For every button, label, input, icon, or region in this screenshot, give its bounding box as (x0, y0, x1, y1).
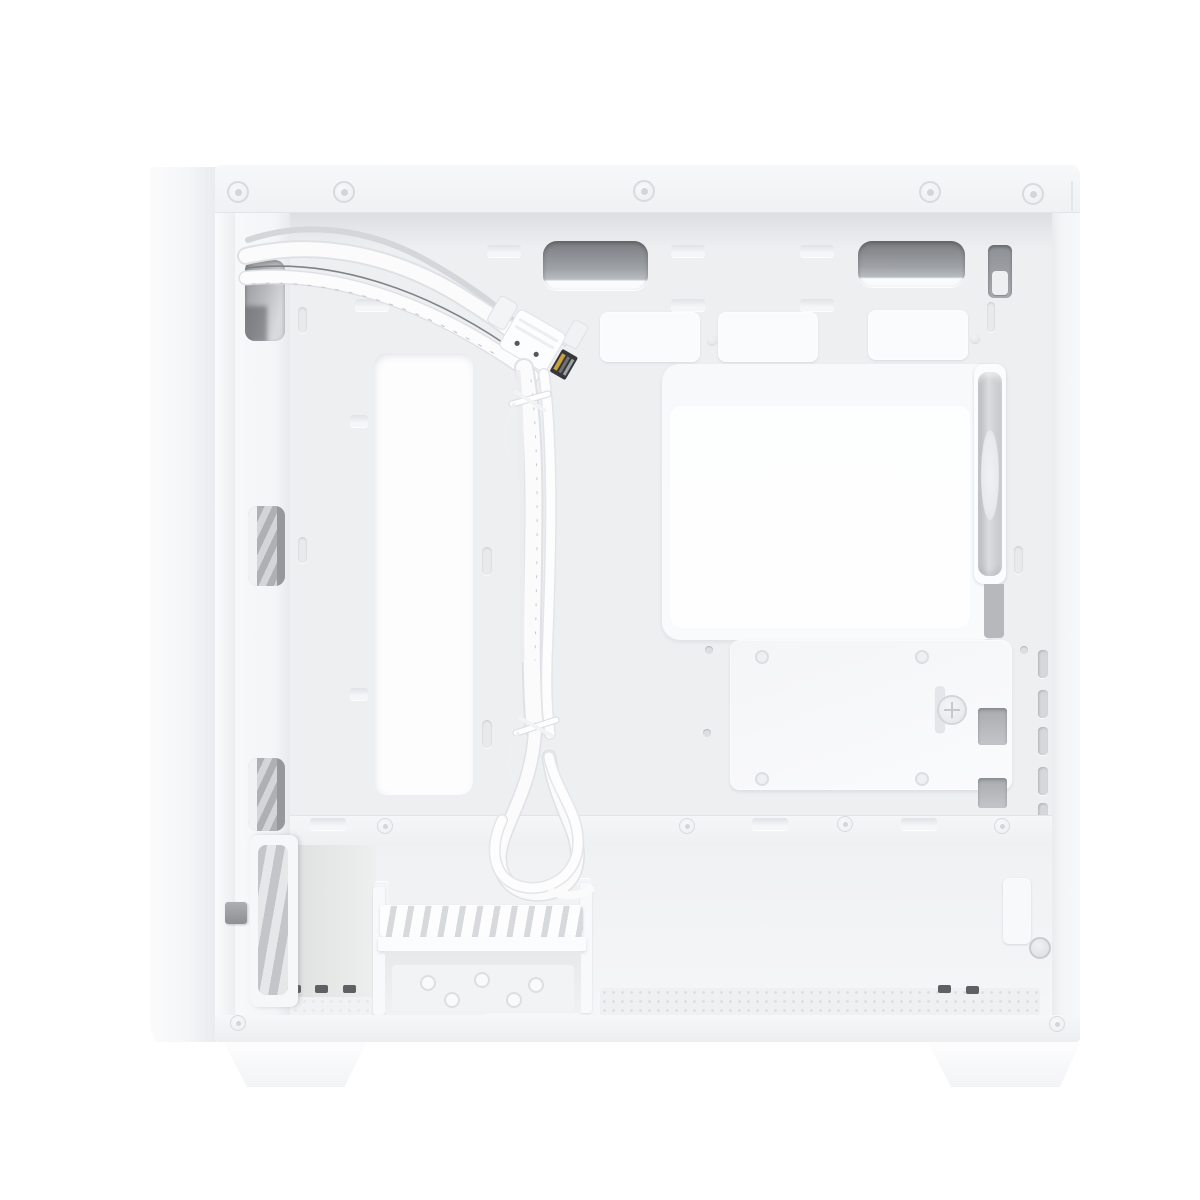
tie-slot (298, 537, 307, 563)
rail-screw (994, 818, 1010, 834)
fan-mount-bracket (984, 584, 1004, 638)
floor-slot (343, 985, 356, 993)
case-body (215, 165, 1080, 1042)
standoff-nub (707, 335, 717, 345)
rail-screw (837, 816, 853, 832)
fan-hub (981, 430, 999, 520)
tray-hole (1020, 646, 1028, 654)
cage-interior (385, 951, 581, 1013)
rivet-screw (1022, 183, 1044, 205)
rivet-screw (633, 180, 655, 202)
rear-panel-column (1052, 213, 1080, 1015)
bottom-rivet (1049, 1016, 1065, 1032)
expansion-slot-notch (1038, 690, 1048, 718)
fan-shadow-sliver (277, 758, 285, 831)
frame-step-notch (1071, 181, 1073, 211)
cable-tie-tab (800, 299, 834, 311)
cable-grommet-slot (858, 241, 965, 287)
tie-slot (298, 307, 307, 333)
rivet-screw (333, 181, 355, 203)
cable-tie-tab (487, 245, 521, 257)
stamped-recess (718, 312, 818, 362)
shroud-divider-rail (290, 815, 1052, 845)
tray-hole (703, 729, 711, 737)
rivet-screw (227, 181, 249, 203)
psu-bracket (1003, 878, 1031, 944)
plate-screw-hole (915, 650, 929, 664)
rail-stamp (901, 818, 937, 830)
rail-screw (679, 818, 695, 834)
tie-slot (482, 547, 492, 575)
psu-thumbscrew (1029, 937, 1051, 959)
hook-tab (350, 415, 368, 427)
rail-stamp (752, 818, 788, 830)
expansion-slot-notch (1038, 650, 1048, 678)
tray-hole (705, 646, 713, 654)
cage-hole (474, 972, 490, 988)
pc-case-product-photo: Product photo of a white micro-ATX PC ca… (0, 0, 1200, 1200)
rail-screw (377, 818, 393, 834)
standoff-nub (560, 335, 570, 345)
cage-hole (420, 975, 436, 991)
fan-frame-sliver (248, 506, 257, 586)
tie-slot (1014, 546, 1023, 574)
bottom-rail (215, 1015, 1080, 1042)
plate-screw-hole (755, 772, 769, 786)
cage-hole (506, 992, 522, 1008)
rear-opening (978, 708, 1007, 745)
front-column-edge (215, 213, 235, 1015)
rear-opening (978, 778, 1007, 808)
stamped-recess (600, 312, 700, 362)
stamped-recess (868, 310, 968, 360)
cage-front-lip (378, 937, 586, 951)
floor-slot (315, 985, 328, 993)
ssd-mount-plate (730, 640, 1012, 790)
tie-slot (482, 720, 492, 748)
cable-tie-tab (800, 245, 834, 257)
motherboard-stamped-panel (662, 364, 999, 640)
vertical-slot-clip (988, 245, 1012, 298)
front-fan-cutout (248, 758, 285, 831)
front-cable-opening (245, 260, 285, 341)
expansion-slot-notch (1038, 727, 1048, 755)
plate-screw-hole (915, 772, 929, 786)
bay-interior-shadow (290, 845, 376, 997)
front-fan-cutout (248, 506, 285, 586)
cable-tie-tab (671, 245, 705, 257)
floor-slot (938, 985, 951, 993)
rail-stamp (310, 818, 346, 830)
plate-screw-hole (755, 650, 769, 664)
cage-floor-plate (392, 965, 574, 1011)
floor-slot (966, 986, 979, 994)
cage-hole (444, 992, 460, 1008)
cpu-backplate-cutout (373, 353, 473, 795)
rivet-screw (919, 181, 941, 203)
cage-vented-top (380, 905, 583, 937)
cage-hole (528, 977, 544, 993)
front-panel-peg (225, 902, 247, 924)
fan-blade-sliver (257, 758, 277, 831)
case-foot-right (926, 1042, 1082, 1088)
hook-tab (350, 688, 368, 700)
rear-exhaust-fan (974, 364, 1006, 584)
fan-blade-sliver (257, 506, 277, 586)
expansion-slot-notch (1038, 767, 1048, 795)
tie-slot (987, 302, 995, 332)
standoff-nub (970, 333, 980, 343)
fan-frame-sliver (248, 758, 257, 831)
case-foot-left (222, 1042, 368, 1088)
bottom-rivet (230, 1015, 246, 1031)
front-intake-fan (250, 835, 298, 1007)
front-panel-slab (150, 167, 216, 1042)
cable-grommet-slot (543, 241, 648, 290)
plate-thumbscrew (937, 695, 967, 725)
motherboard-tray (290, 213, 1052, 815)
cable-tie-tab (671, 299, 705, 311)
cable-tie-tab (355, 299, 389, 311)
fan-shadow-sliver (277, 506, 285, 586)
